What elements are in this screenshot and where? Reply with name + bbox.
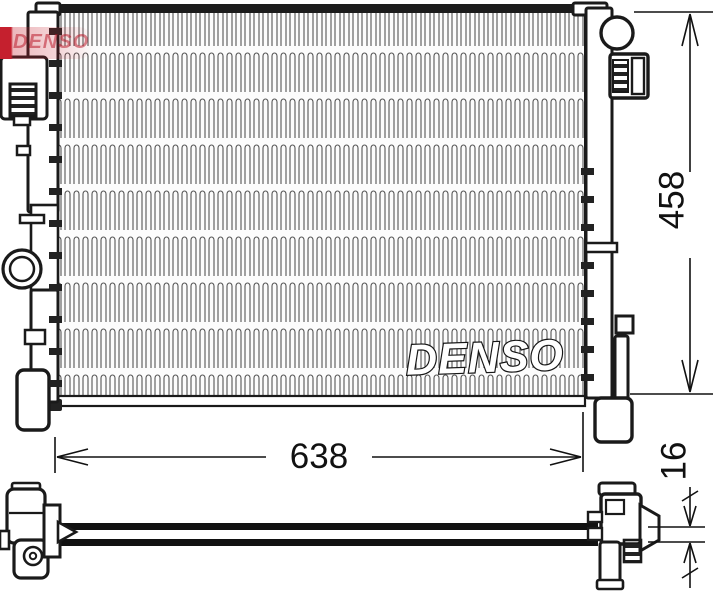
dimension-width-label: 638 — [290, 437, 348, 476]
brand-logo-text: DENSO — [405, 331, 565, 384]
watermark-text: DENSO — [13, 31, 89, 54]
side-right-fitting — [588, 483, 659, 589]
dimension-height-label: 458 — [652, 171, 691, 229]
bracket-grille — [10, 84, 36, 116]
side-core-bottom-line — [60, 539, 598, 546]
top-header-bar — [60, 4, 585, 13]
side-core-top-line — [60, 523, 598, 530]
product-image-radiator: DENSO DENSO — [0, 0, 713, 593]
filler-neck — [601, 17, 633, 49]
dimension-depth-label: 16 — [654, 442, 693, 481]
radiator-side-view — [0, 483, 659, 589]
filler-boss-inner — [10, 257, 34, 281]
bottom-header-bar — [57, 396, 585, 406]
right-mount-foot — [595, 398, 632, 442]
side-left-fitting — [0, 483, 76, 578]
side-right-pipe — [600, 542, 620, 584]
radiator-technical-drawing: DENSO — [0, 0, 713, 593]
connector-block — [610, 54, 648, 98]
radiator-front-view: DENSO — [1, 3, 648, 442]
left-mount-foot — [17, 370, 49, 430]
side-right-lug — [640, 505, 659, 551]
watermark-logo: DENSO — [0, 27, 94, 59]
left-tank — [1, 3, 60, 430]
right-side-lug — [616, 316, 633, 333]
